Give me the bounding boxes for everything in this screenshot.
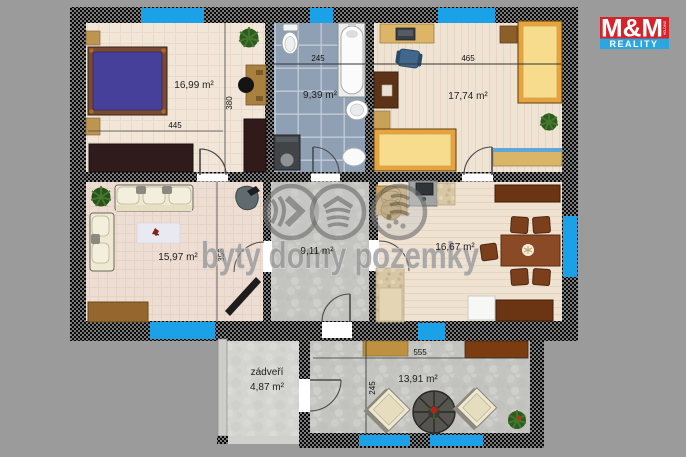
svg-text:245: 245 [368,381,377,395]
svg-text:15,97 m²: 15,97 m² [158,252,198,263]
svg-text:17,74 m²: 17,74 m² [448,91,488,102]
svg-text:16,67 m²: 16,67 m² [435,242,475,253]
svg-text:REALITY: REALITY [609,39,658,49]
svg-text:16,99 m²: 16,99 m² [174,80,214,91]
svg-text:380: 380 [225,96,234,110]
svg-text:13,91 m²: 13,91 m² [398,374,438,385]
svg-text:9,11 m²: 9,11 m² [300,246,334,257]
svg-text:465: 465 [461,54,475,63]
svg-text:4,87 m²: 4,87 m² [250,382,285,393]
svg-text:555: 555 [413,348,427,357]
svg-text:9,39 m²: 9,39 m² [303,90,338,101]
svg-text:445: 445 [168,121,182,130]
svg-text:245: 245 [311,54,325,63]
svg-text:zádveří: zádveří [251,367,284,378]
svg-text:HOLDING: HOLDING [663,20,667,35]
